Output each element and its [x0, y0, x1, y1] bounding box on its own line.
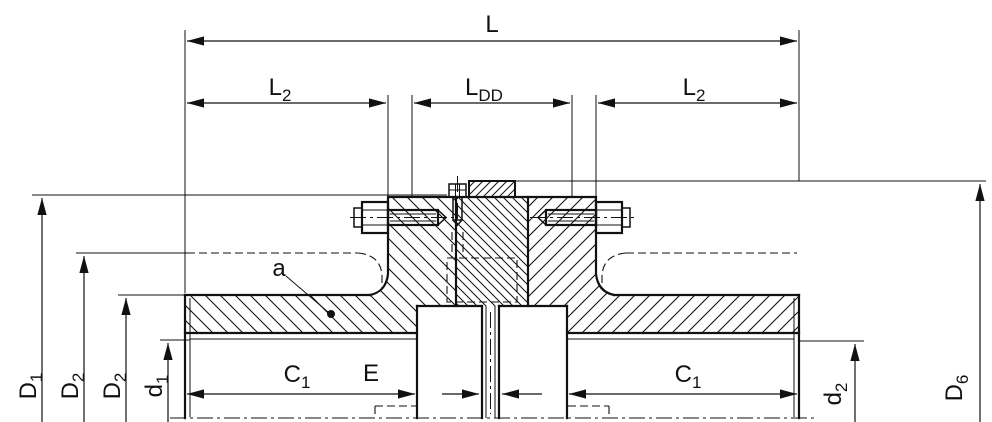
- label-D1: D1: [15, 373, 46, 400]
- label-L: L: [485, 11, 498, 38]
- label-D6: D6: [941, 375, 972, 402]
- label-L2-left: L2: [269, 74, 292, 105]
- drawing-canvas: L L2 LDD L2 D1 D2 D2 d1 C1 E C1 d2 D6 a: [0, 0, 992, 422]
- label-L2-right: L2: [683, 74, 706, 105]
- label-D2-inner: D2: [99, 373, 130, 400]
- center-ring: [469, 181, 515, 197]
- right-flange-hatch: [528, 197, 614, 306]
- label-d2: d2: [820, 383, 851, 406]
- label-d1: d1: [141, 375, 172, 398]
- right-hub-hatch: [567, 295, 799, 333]
- callout-a-dot: [327, 310, 335, 318]
- label-C1-right: C1: [675, 361, 702, 392]
- left-hub-hatch: [185, 295, 417, 333]
- right-hub: [567, 295, 799, 418]
- left-hidden-od-corner: [358, 253, 382, 288]
- coupling-drawing: L L2 LDD L2 D1 D2 D2 d1 C1 E C1 d2 D6 a: [0, 0, 992, 422]
- right-flange: [528, 197, 614, 306]
- left-hub: [185, 295, 417, 418]
- label-D2-outer: D2: [57, 373, 88, 400]
- left-flange-hatch: [370, 197, 456, 306]
- label-E: E: [363, 360, 379, 387]
- label-callout-a: a: [272, 255, 286, 282]
- left-keyway-hidden: [375, 406, 416, 418]
- right-hidden-od-corner: [602, 253, 626, 288]
- label-C1-left: C1: [284, 361, 311, 392]
- left-flange: [370, 197, 456, 306]
- right-keyway-hidden: [568, 406, 609, 418]
- label-LDD: LDD: [465, 74, 503, 105]
